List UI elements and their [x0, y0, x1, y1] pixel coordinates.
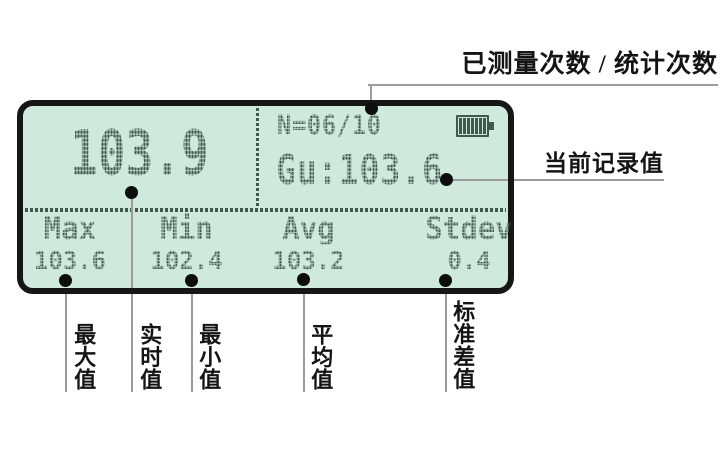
stat-value-avg: 103.2	[255, 248, 362, 273]
label-avg-value: 平均值	[308, 323, 332, 391]
callout-dot-max	[59, 274, 72, 287]
callout-line-max	[65, 294, 67, 392]
screen-vertical-divider	[256, 108, 259, 208]
lcd-screen-inner: 103.9 N=06/10 Gu:103.6 Max 103.6 Min 102…	[23, 106, 508, 288]
callout-dot-avg	[297, 273, 310, 286]
label-stdev-value: 标准差值	[450, 300, 474, 390]
callout-line-current-record-inner	[453, 179, 508, 181]
battery-fill	[459, 118, 486, 134]
stat-label-stdev: Stdev	[414, 213, 524, 244]
callout-line-measure-count-horizontal	[368, 84, 718, 86]
diagram-canvas: 103.9 N=06/10 Gu:103.6 Max 103.6 Min 102…	[0, 0, 726, 450]
screen-horizontal-divider	[25, 208, 506, 212]
current-record-value: Gu:103.6	[276, 149, 443, 190]
battery-terminal	[489, 122, 494, 130]
stat-column-stdev: Stdev 0.4	[414, 213, 524, 272]
stat-label-max: Max	[23, 213, 117, 244]
annotation-current-record: 当前记录值	[540, 151, 664, 177]
callout-dot-measure-count	[365, 102, 378, 115]
label-realtime-value: 实时值	[137, 323, 161, 391]
label-min-value: 最小值	[196, 323, 220, 391]
callout-line-current-record-outer	[514, 179, 664, 181]
stat-column-min: Min 102.4	[133, 213, 240, 272]
stat-value-max: 103.6	[23, 248, 117, 273]
main-reading-value: 103.9	[23, 122, 256, 184]
callout-dot-stdev	[439, 274, 452, 287]
annotation-measure-count: 已测量次数 / 统计次数	[440, 51, 718, 80]
stat-value-stdev: 0.4	[414, 248, 524, 273]
callout-line-min	[191, 294, 193, 392]
stat-column-max: Max 103.6	[23, 213, 117, 272]
lcd-screen: 103.9 N=06/10 Gu:103.6 Max 103.6 Min 102…	[17, 100, 514, 294]
stat-column-avg: Avg 103.2	[255, 213, 362, 272]
callout-line-realtime-inner	[131, 199, 133, 288]
stat-label-min: Min	[133, 213, 240, 244]
measure-counter-value: N=06/10	[277, 112, 382, 138]
stat-label-avg: Avg	[255, 213, 362, 244]
callout-line-avg	[303, 294, 305, 392]
stat-value-min: 102.4	[133, 248, 240, 273]
callout-line-realtime-outer	[131, 294, 133, 392]
callout-dot-realtime	[125, 186, 138, 199]
callout-dot-current-record	[440, 173, 453, 186]
label-max-value: 最大值	[71, 323, 95, 391]
callout-dot-min	[185, 274, 198, 287]
battery-full-icon	[456, 115, 489, 137]
callout-line-stdev	[445, 294, 447, 392]
